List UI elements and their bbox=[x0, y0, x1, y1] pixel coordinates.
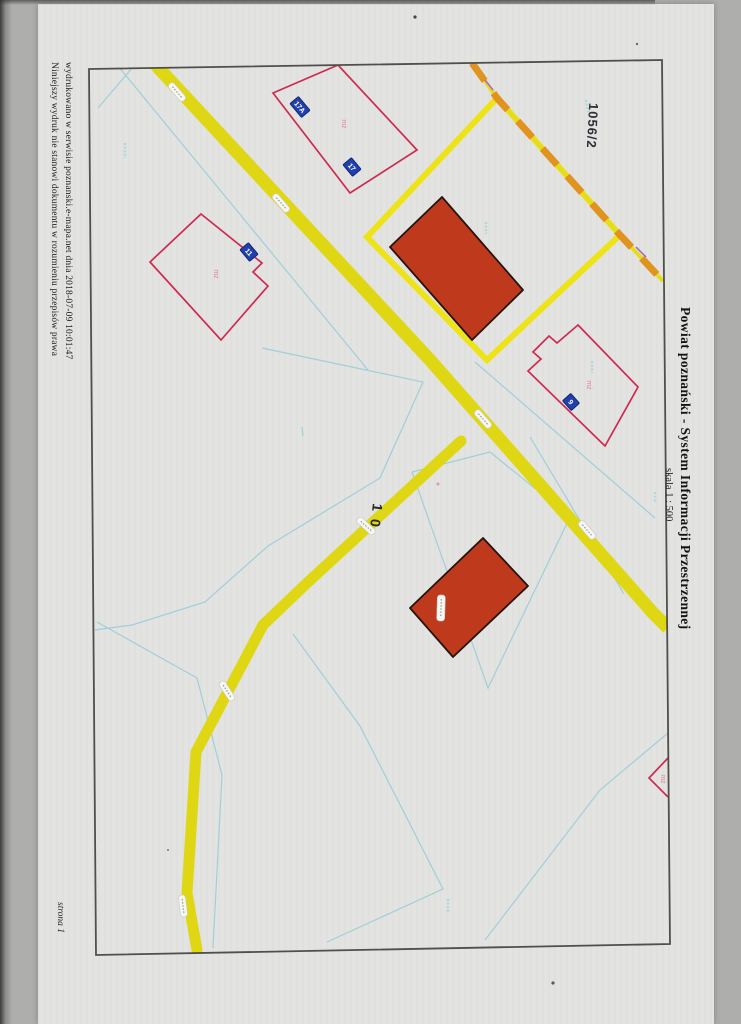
usage-label-3: mż bbox=[585, 380, 592, 390]
scanner-edge-shadow-top bbox=[0, 0, 655, 5]
building-red-lower bbox=[410, 538, 528, 657]
address-label-17: 17 bbox=[343, 158, 361, 177]
disclaimer-line-1: Niniejszy wydruk nie stanowi dokumentu w… bbox=[49, 62, 59, 356]
road-parcel-number: 1 0 bbox=[367, 503, 386, 530]
building-outline-11 bbox=[150, 214, 268, 340]
usage-label-4: mż bbox=[659, 774, 666, 784]
building-red-upper bbox=[390, 197, 523, 340]
scan-speck bbox=[551, 981, 554, 984]
scan-speck bbox=[636, 43, 638, 45]
parcel-number-label: 1056/2 bbox=[584, 103, 601, 149]
address-label-17a: 17A bbox=[290, 97, 310, 118]
scan-speck bbox=[167, 849, 169, 851]
scan-speck bbox=[413, 15, 416, 18]
dashed-boundary-line bbox=[472, 63, 663, 281]
building-outline-17 bbox=[273, 65, 417, 193]
scanner-edge-shadow-left bbox=[0, 0, 12, 1024]
building-label-pill bbox=[437, 595, 446, 621]
usage-label-1: mż bbox=[340, 119, 347, 129]
scale-label: skala 1 : 500 bbox=[663, 468, 674, 521]
cadastral-map: 17A 17 11 9 mż mż mż mż bbox=[0, 0, 741, 1024]
document-title: Powiat poznański - System Informacji Prz… bbox=[677, 307, 693, 630]
building-outline-9 bbox=[528, 325, 638, 446]
scan-speck bbox=[437, 483, 440, 486]
usage-label-2: mż bbox=[212, 269, 219, 279]
disclaimer-line-2: wydrukowano w serwisie poznanski.e-mapa.… bbox=[63, 62, 73, 359]
page-number-label: strona 1 bbox=[55, 902, 65, 933]
